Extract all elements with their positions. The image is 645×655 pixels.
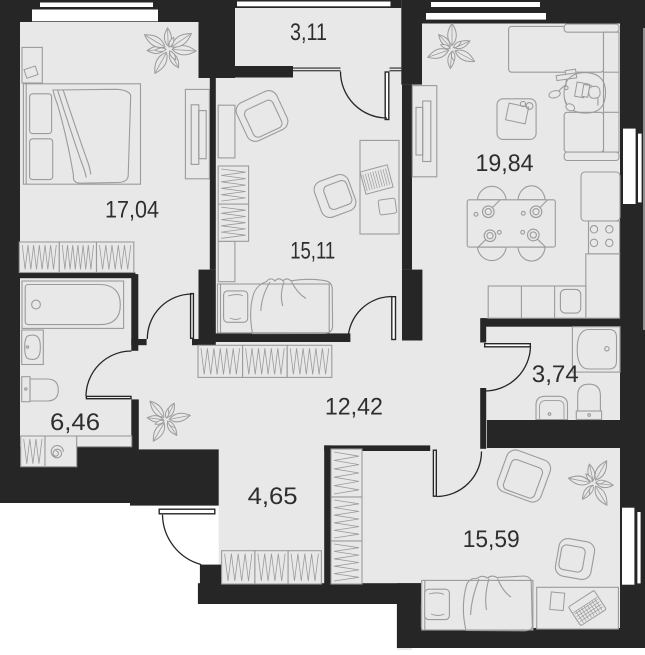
svg-text:19,84: 19,84 <box>476 150 534 177</box>
svg-text:4,65: 4,65 <box>248 483 298 510</box>
svg-text:3,11: 3,11 <box>290 19 327 46</box>
svg-text:17,04: 17,04 <box>105 197 159 224</box>
svg-text:12,42: 12,42 <box>325 394 383 421</box>
svg-text:6,46: 6,46 <box>50 409 100 436</box>
svg-text:15,59: 15,59 <box>463 526 520 553</box>
svg-text:3,74: 3,74 <box>532 361 579 388</box>
svg-text:15,11: 15,11 <box>290 238 335 265</box>
